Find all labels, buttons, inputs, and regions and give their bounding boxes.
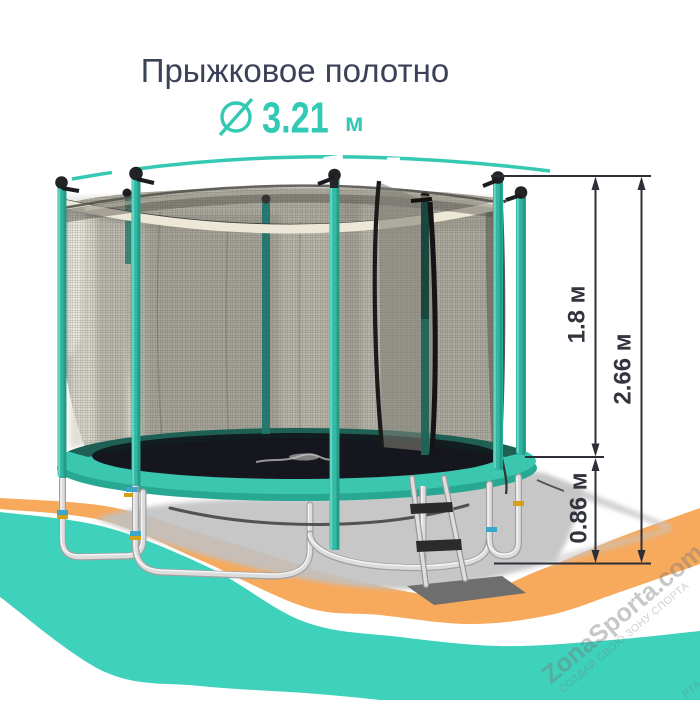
svg-text:0.86 м: 0.86 м	[565, 472, 592, 543]
svg-text:3.21: 3.21	[262, 93, 329, 142]
svg-text:1.8 м: 1.8 м	[563, 286, 590, 344]
svg-text:м: м	[345, 109, 364, 137]
svg-text:Прыжковое полотно: Прыжковое полотно	[141, 52, 450, 89]
svg-text:2.66 м: 2.66 м	[609, 333, 636, 404]
